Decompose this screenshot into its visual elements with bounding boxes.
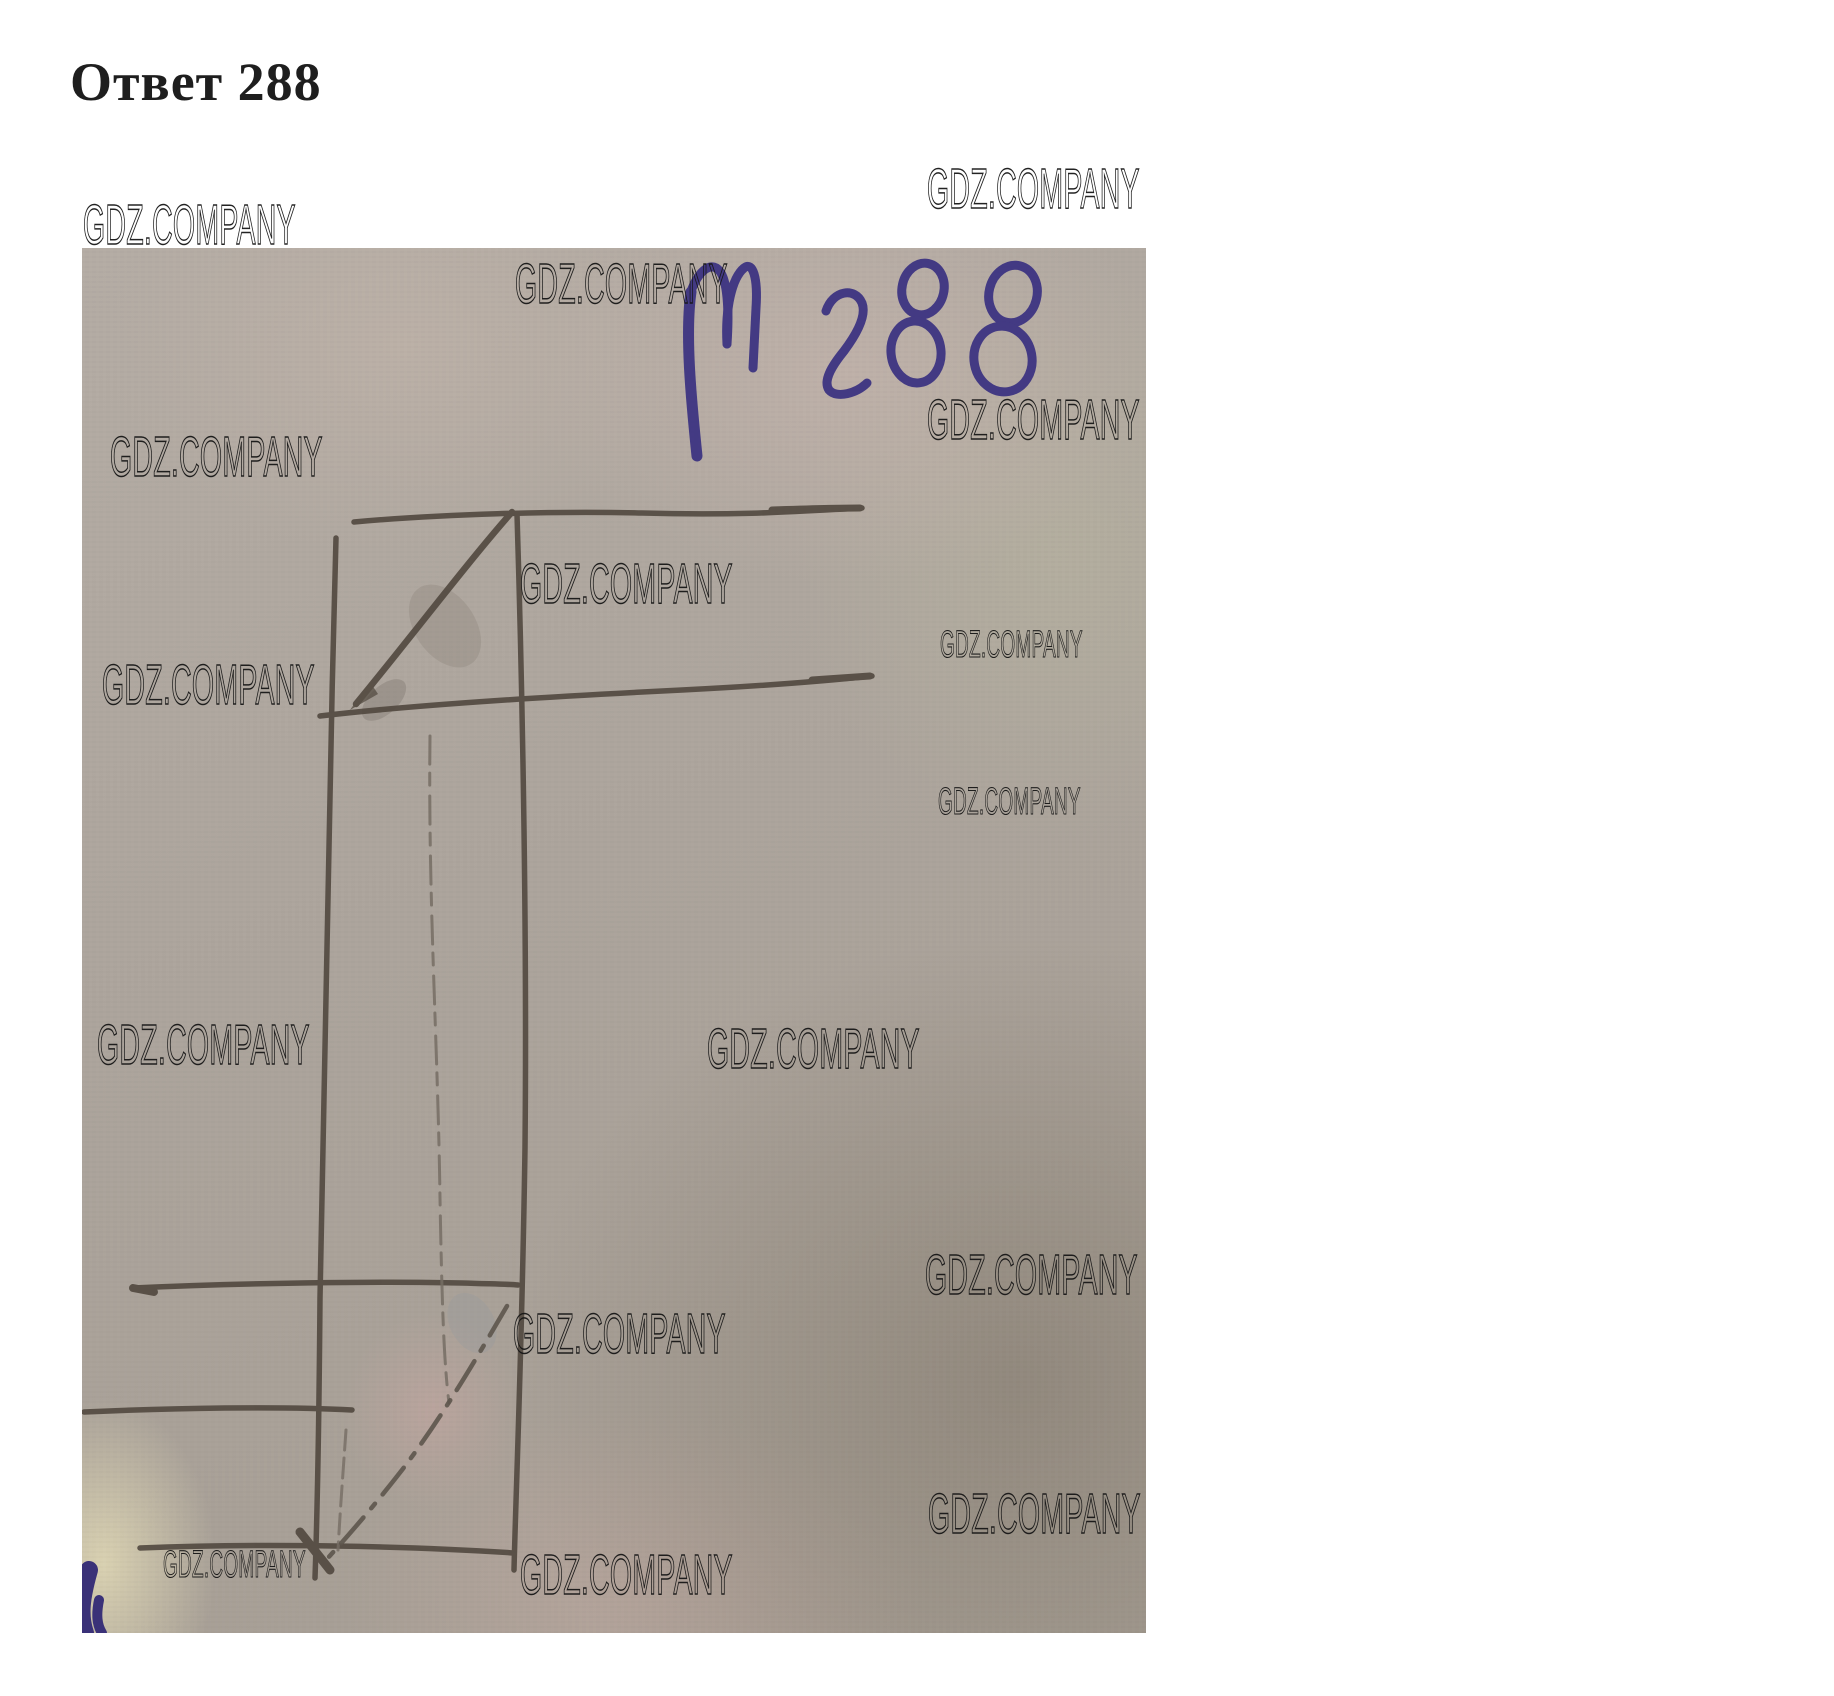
watermark-text: GDZ.COMPANY (925, 1247, 1138, 1304)
digit-8b-bottom (969, 321, 1038, 396)
digit-8a-top (897, 259, 949, 319)
numero-sign (689, 292, 697, 456)
watermark-text: GDZ.COMPANY (102, 657, 315, 714)
bottom-upper-line (133, 1282, 518, 1288)
watermark-text: GDZ.COMPANY (707, 1021, 920, 1078)
right-vertical-edge (514, 514, 526, 1570)
bottom-upper-dab (133, 1288, 154, 1292)
top-edge-dab (772, 508, 860, 510)
watermark-text: GDZ.COMPANY (97, 1017, 310, 1074)
watermark-text: GDZ.COMPANY (938, 783, 1081, 821)
watermark-text: GDZ.COMPANY (513, 1306, 726, 1363)
digit-8b-top (983, 260, 1044, 328)
pencil-smudges (355, 571, 507, 1361)
watermark-text: GDZ.COMPANY (163, 1546, 306, 1584)
digit-2 (826, 293, 867, 395)
hidden-vertical-edge (430, 736, 449, 1403)
numero-arc2 (727, 266, 757, 368)
top-diagonal (356, 512, 512, 704)
watermark-text: GDZ.COMPANY (83, 197, 296, 254)
watermark-text: GDZ.COMPANY (515, 256, 728, 313)
hidden-vertical-lower (338, 1430, 346, 1550)
watermark-text: GDZ.COMPANY (927, 392, 1140, 449)
watermark-text: GDZ.COMPANY (110, 429, 323, 486)
page-title: Ответ 288 (70, 53, 322, 112)
watermark-text: GDZ.COMPANY (520, 1547, 733, 1604)
watermark-text: GDZ.COMPANY (927, 161, 1140, 218)
left-extension-line (84, 1408, 352, 1412)
blue-ink-mark (82, 1570, 102, 1633)
hidden-edges (326, 736, 507, 1560)
page: Ответ 288 GDZ.COMPANY GDZ.COMPANY hand-d… (0, 0, 1834, 1696)
watermark-text: GDZ.COMPANY (928, 1486, 1141, 1543)
watermark-text: GDZ.COMPANY (520, 556, 733, 613)
digit-8a-bottom (888, 319, 944, 386)
watermark-text: GDZ.COMPANY (940, 626, 1083, 664)
second-edge-dab (812, 676, 870, 680)
left-vertical-edge (315, 538, 336, 1578)
